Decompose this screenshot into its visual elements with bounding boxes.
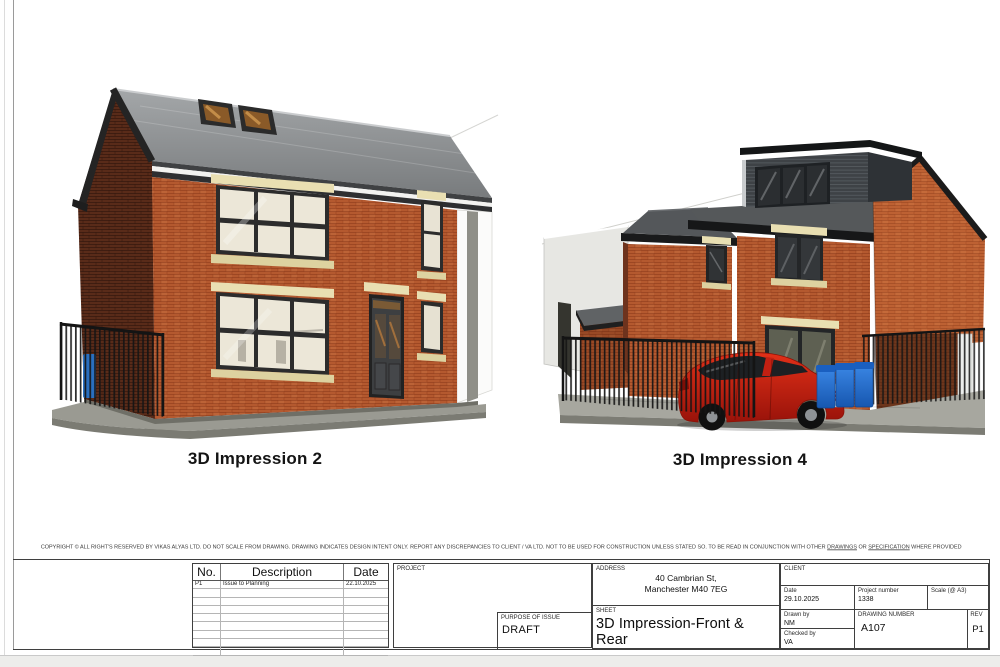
drawing-number-cell: DRAWING NUMBER A107 <box>854 609 968 649</box>
render-3d-impression-2 <box>40 58 500 453</box>
address-box: ADDRESS 40 Cambrian St, Manchester M40 7… <box>592 563 780 606</box>
revision-table-body: P1Issue to Planning22.10.2025 <box>193 581 388 656</box>
drawn-by-label: Drawn by <box>781 610 854 619</box>
project-number-label: Project number <box>855 586 927 595</box>
roof-window <box>238 105 277 135</box>
copyright-text: COPYRIGHT © ALL RIGHT'S RESERVED BY VIKA… <box>41 544 827 549</box>
front-door <box>364 282 409 399</box>
dormer <box>740 140 922 208</box>
drawn-by-cell: Drawn by NM <box>780 609 855 629</box>
drawing-number-value: A107 <box>855 619 967 634</box>
scale-cell: Scale (@ A3) <box>927 585 989 610</box>
revision-table-header: No.DescriptionDate <box>193 564 388 581</box>
titleblock-top-line <box>13 559 990 560</box>
purpose-of-issue-cell: PURPOSE OF ISSUE DRAFT <box>497 612 593 649</box>
revision-row <box>193 598 388 606</box>
project-label: PROJECT <box>394 564 591 573</box>
upper-narrow-window <box>417 190 446 280</box>
checked-by-value: VA <box>781 638 854 646</box>
project-number-cell: Project number 1338 <box>854 585 928 610</box>
copyright-link-specification: SPECIFICATION <box>869 544 910 549</box>
checked-by-cell: Checked by VA <box>780 628 855 649</box>
scale-label: Scale (@ A3) <box>928 586 988 595</box>
revision-row <box>193 606 388 614</box>
copyright-note: COPYRIGHT © ALL RIGHT'S RESERVED BY VIKA… <box>13 542 990 552</box>
sheet-title: 3D Impression-Front & Rear <box>593 615 779 648</box>
rev-value: P1 <box>968 619 988 635</box>
railing-fence <box>60 322 164 417</box>
drawn-by-value: NM <box>781 619 854 627</box>
project-box: PROJECT PURPOSE OF ISSUE DRAFT <box>393 563 592 648</box>
drawing-sheet: 3D Impression 2 3D Impression 4 COPYRIGH… <box>0 0 1000 667</box>
revision-header-cell: Description <box>221 564 344 580</box>
purpose-of-issue-value: DRAFT <box>498 622 593 636</box>
address-label: ADDRESS <box>593 564 779 573</box>
wheelie-bins <box>816 362 874 408</box>
revision-row: P1Issue to Planning22.10.2025 <box>193 581 388 589</box>
revision-header-cell: No. <box>193 564 221 580</box>
figure-caption-1: 3D Impression 2 <box>40 449 470 469</box>
revision-row <box>193 614 388 622</box>
revision-row <box>193 639 388 647</box>
project-number-value: 1338 <box>855 595 927 603</box>
railing-fence-right <box>862 329 985 405</box>
date-value: 29.10.2025 <box>781 595 854 603</box>
figure-caption-2: 3D Impression 4 <box>540 450 940 470</box>
address-line-2: Manchester M40 7EG <box>593 584 779 595</box>
revision-row <box>193 647 388 655</box>
titleblock-right-line <box>989 559 990 650</box>
background-strip <box>0 656 1000 667</box>
checked-by-label: Checked by <box>781 629 854 638</box>
sheet-frame-bottom <box>13 649 990 650</box>
revision-row <box>193 631 388 639</box>
sheet-frame-left <box>13 0 14 650</box>
render-3d-impression-4 <box>540 112 990 442</box>
main-upper-window <box>771 224 827 288</box>
sheet-label: SHEET <box>593 606 779 615</box>
revision-header-cell: Date <box>344 564 388 580</box>
rev-cell: REV P1 <box>967 609 989 649</box>
sheet-box: SHEET 3D Impression-Front & Rear <box>592 605 780 649</box>
client-box: CLIENT <box>780 563 989 586</box>
purpose-of-issue-label: PURPOSE OF ISSUE <box>498 613 593 622</box>
date-cell: Date 29.10.2025 <box>780 585 855 610</box>
drawing-number-label: DRAWING NUMBER <box>855 610 967 619</box>
scale-value <box>928 595 988 596</box>
revision-row <box>193 622 388 630</box>
revision-table: No.DescriptionDate P1Issue to Planning22… <box>192 563 389 648</box>
address-line-1: 40 Cambrian St, <box>593 573 779 584</box>
copyright-link-drawings: DRAWINGS <box>827 544 857 549</box>
rev-label: REV <box>968 610 988 619</box>
date-label: Date <box>781 586 854 595</box>
revision-row <box>193 589 388 597</box>
client-label: CLIENT <box>781 564 988 573</box>
roof-window <box>198 99 236 128</box>
paper-edge <box>4 0 5 655</box>
